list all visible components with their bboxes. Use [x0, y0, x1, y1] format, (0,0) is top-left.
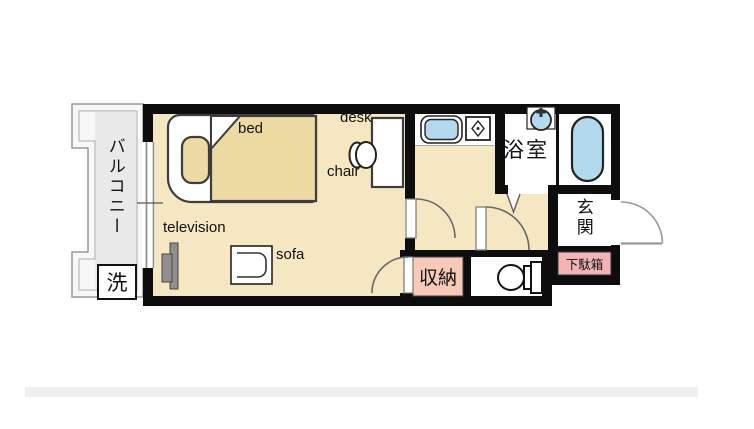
entrance-label: 玄関: [573, 198, 592, 238]
balcony-label: バルコニー: [105, 137, 124, 237]
stove: [466, 117, 490, 140]
footer-strip: [25, 387, 698, 397]
bed-label: bed: [238, 121, 263, 138]
closet-door-leaf: [404, 257, 413, 293]
bathroom-label: 浴室: [503, 139, 549, 162]
washing-machine: 洗: [97, 264, 137, 300]
shower-faucet: [527, 107, 555, 130]
storage-label: 収納: [413, 257, 463, 296]
bathtub: [572, 117, 603, 181]
front-door-arc: [621, 202, 663, 244]
kitchen-door-leaf: [406, 199, 416, 238]
chair-label: chair: [327, 164, 360, 181]
bed-pillow: [182, 137, 209, 183]
desk-label: desk: [340, 110, 372, 127]
kitchen-sink: [421, 116, 462, 143]
sofa: [231, 246, 272, 284]
hall-door-leaf: [476, 207, 486, 250]
television-label: television: [163, 220, 226, 237]
sofa-label: sofa: [276, 247, 304, 264]
floor-plan: バルコニー 洗 bed television sofa desk chair 浴…: [0, 0, 754, 429]
shoe-cabinet-label: 下駄箱: [558, 252, 611, 275]
washing-machine-label: 洗: [107, 267, 128, 297]
